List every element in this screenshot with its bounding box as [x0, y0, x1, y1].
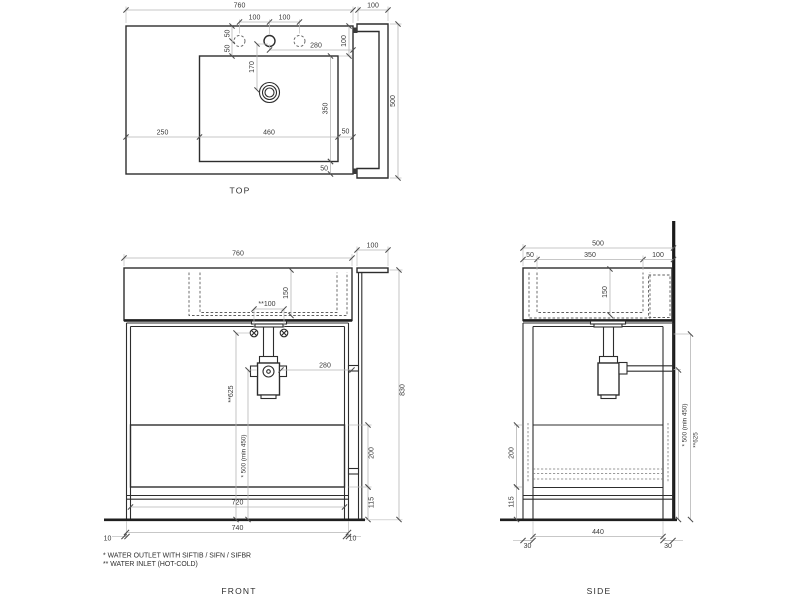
panel-connector-bottom	[353, 169, 358, 175]
dim-label: 150	[283, 287, 290, 299]
dim-label: * 500 (min 450)	[682, 403, 689, 446]
dim-label: 50	[320, 166, 328, 173]
front-view-title: FRONT	[221, 586, 256, 596]
dim-label: 740	[232, 525, 244, 532]
dim-label: 440	[592, 529, 604, 536]
dim-label: 50	[225, 30, 232, 38]
dim-label: 280	[319, 363, 331, 370]
dim-label: 200	[369, 447, 376, 459]
dim-label: 50	[526, 252, 534, 259]
technical-drawing: 760 100 100 100 50 50 100	[0, 0, 800, 600]
dim-label: 100	[367, 243, 379, 250]
water-inlet-right	[280, 329, 288, 337]
dim-label: 720	[232, 500, 244, 507]
dim-label: * 500 (min 450)	[241, 434, 248, 477]
dim-label: 500	[592, 241, 604, 248]
dim-label: 350	[584, 252, 596, 259]
dim-label: 115	[509, 496, 516, 507]
dim-label: 10	[349, 536, 357, 543]
dim-label: 830	[400, 384, 407, 396]
dim-label: 760	[232, 251, 244, 258]
dim-label: 460	[263, 130, 275, 137]
dim-label: 100	[279, 15, 291, 22]
dim-label: 30	[524, 543, 532, 550]
dim-label: 500	[390, 95, 397, 107]
background	[0, 0, 800, 600]
dim-label: 200	[509, 447, 516, 459]
dim-label: 100	[652, 252, 664, 259]
dim-label: **625	[693, 432, 700, 448]
dim-label: 10	[104, 536, 112, 543]
dim-label: 100	[249, 15, 261, 22]
dim-label: 170	[249, 61, 256, 73]
dim-label: **100	[258, 301, 275, 308]
dim-label: 30	[664, 543, 672, 550]
dim-label: 115	[369, 497, 376, 508]
top-view-title: TOP	[230, 186, 251, 196]
drawing-canvas: 760 100 100 100 50 50 100	[0, 0, 800, 600]
side-view-title: SIDE	[587, 586, 612, 596]
dim-label: 280	[310, 43, 322, 50]
drawer-front	[131, 425, 345, 487]
water-inlet-left	[250, 329, 258, 337]
dim-label: 100	[367, 3, 379, 10]
dim-label: 350	[323, 103, 330, 115]
dim-label: 250	[157, 130, 169, 137]
dim-label: 50	[225, 45, 232, 53]
dim-label: **625	[228, 385, 235, 402]
footnote-water-outlet: * WATER OUTLET WITH SIFTIB / SIFN / SIFB…	[103, 553, 251, 560]
dim-label: 760	[234, 3, 246, 10]
dim-label: 150	[602, 286, 609, 298]
panel-connector-top	[353, 28, 358, 34]
footnote-water-inlet: ** WATER INLET (HOT-COLD)	[103, 561, 198, 568]
dim-label: 50	[342, 129, 350, 136]
dim-label: 100	[341, 35, 348, 47]
